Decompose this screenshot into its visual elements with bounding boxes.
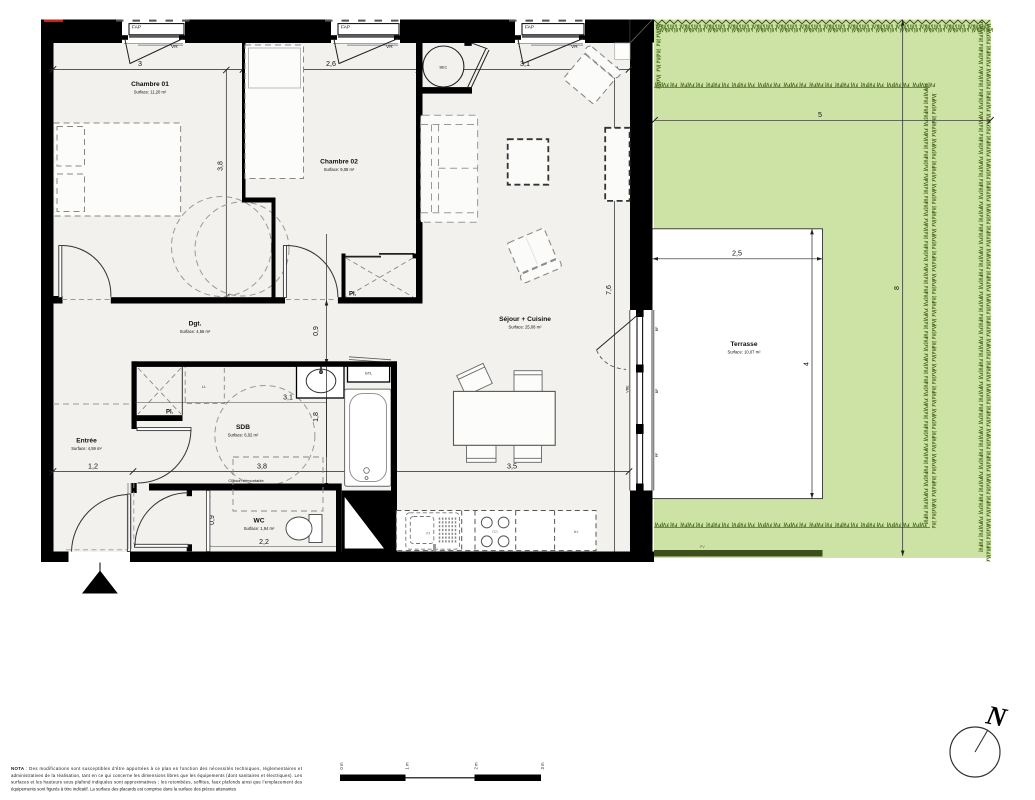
svg-text:Terrasse: Terrasse — [730, 341, 757, 348]
svg-text:2,6: 2,6 — [326, 59, 336, 68]
svg-text:1,8: 1,8 — [313, 412, 320, 422]
svg-text:LL: LL — [202, 385, 206, 389]
svg-text:3,8: 3,8 — [257, 461, 267, 470]
svg-text:CU: CU — [492, 530, 498, 534]
svg-text:Surface: 25,08 m²: Surface: 25,08 m² — [509, 325, 543, 330]
svg-text:Cloison démontable: Cloison démontable — [228, 478, 264, 483]
svg-text:équipements sont figurés à tit: équipements sont figurés à titre indicat… — [11, 786, 237, 791]
svg-text:8: 8 — [894, 286, 901, 290]
svg-text:Surface: 6,02 m²: Surface: 6,02 m² — [228, 432, 259, 437]
svg-text:Surface: 10,07 m²: Surface: 10,07 m² — [728, 350, 762, 355]
svg-text:NOTA : Des modifications sont: NOTA : Des modifications sont susceptibl… — [11, 766, 303, 771]
svg-text:FR: FR — [573, 530, 578, 534]
svg-text:7,6: 7,6 — [606, 285, 613, 295]
svg-text:FAP: FAP — [132, 25, 141, 31]
svg-text:PF: PF — [655, 452, 659, 457]
svg-text:GTL: GTL — [365, 372, 372, 376]
svg-text:3 m: 3 m — [540, 762, 545, 769]
svg-text:Pl.: Pl. — [349, 292, 357, 298]
svg-text:2 m: 2 m — [474, 762, 479, 769]
svg-text:1 m: 1 m — [405, 762, 410, 769]
svg-text:2,2: 2,2 — [259, 539, 269, 546]
svg-text:4: 4 — [804, 362, 811, 366]
svg-text:VR: VR — [571, 44, 578, 50]
svg-text:surfaces et les hauteurs sous: surfaces et les hauteurs sous plafond in… — [11, 780, 303, 785]
svg-text:FAP: FAP — [525, 25, 534, 31]
svg-text:0 m: 0 m — [339, 762, 344, 769]
svg-text:Pl.: Pl. — [166, 410, 174, 416]
svg-text:BF: BF — [655, 326, 659, 331]
svg-text:0,9: 0,9 — [313, 326, 320, 336]
svg-text:3,8: 3,8 — [218, 161, 225, 171]
svg-text:VRE: VRE — [625, 385, 629, 393]
svg-text:administratives de la réalisat: administratives de la réalisation, tant … — [11, 773, 303, 778]
svg-text:1,2: 1,2 — [88, 461, 98, 470]
svg-text:Surface: 9,08 m²: Surface: 9,08 m² — [324, 167, 355, 172]
svg-text:SDB: SDB — [236, 424, 250, 431]
svg-text:WC: WC — [254, 517, 265, 524]
svg-text:3,1: 3,1 — [520, 59, 530, 68]
svg-text:3: 3 — [138, 59, 142, 68]
svg-text:5: 5 — [818, 110, 822, 119]
svg-text:Surface: 11,20 m²: Surface: 11,20 m² — [134, 89, 167, 94]
svg-text:PV: PV — [700, 545, 705, 549]
svg-text:Chambre 01: Chambre 01 — [131, 81, 169, 88]
svg-text:Dgt.: Dgt. — [189, 321, 202, 328]
svg-text:Surface: 1,94 m²: Surface: 1,94 m² — [244, 526, 275, 531]
svg-text:FAP: FAP — [341, 25, 350, 31]
svg-text:LV: LV — [425, 531, 430, 535]
svg-text:Entrée: Entrée — [76, 437, 97, 444]
svg-text:Chambre 02: Chambre 02 — [320, 158, 358, 165]
svg-text:BF: BF — [655, 388, 659, 393]
svg-text:2,5: 2,5 — [732, 249, 742, 258]
svg-text:Séjour + Cuisine: Séjour + Cuisine — [499, 316, 551, 323]
svg-text:3,1: 3,1 — [283, 395, 293, 402]
svg-text:VR: VR — [171, 44, 178, 50]
svg-text:VR: VR — [386, 44, 393, 50]
svg-text:Surface: 4,56 m²: Surface: 4,56 m² — [180, 329, 211, 334]
svg-text:BEC: BEC — [439, 65, 447, 69]
svg-text:Surface: 4,59 m²: Surface: 4,59 m² — [71, 446, 102, 451]
